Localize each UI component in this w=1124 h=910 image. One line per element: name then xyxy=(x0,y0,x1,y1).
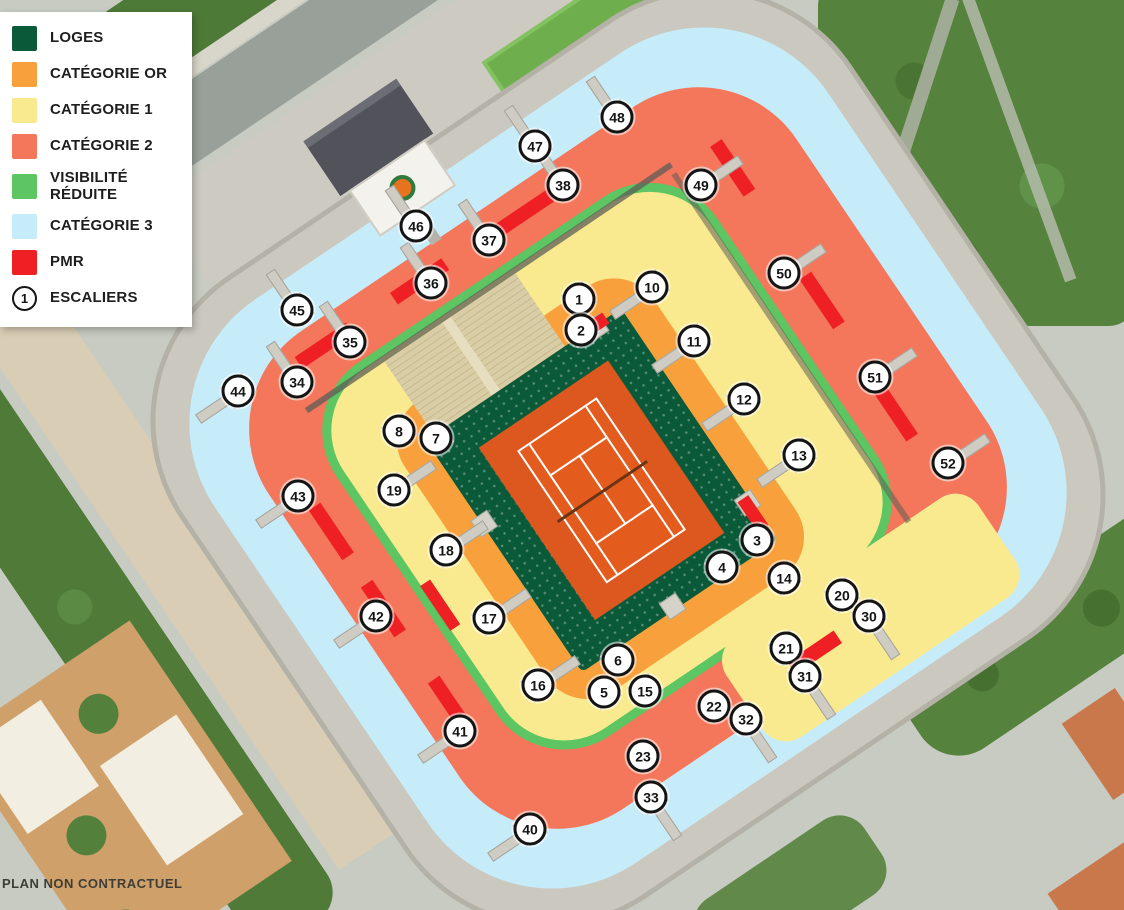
escalier-6[interactable]: 6 xyxy=(602,644,635,677)
escalier-45[interactable]: 45 xyxy=(281,294,314,327)
escalier-5[interactable]: 5 xyxy=(588,676,621,709)
escalier-17[interactable]: 17 xyxy=(473,602,506,635)
escalier-23[interactable]: 23 xyxy=(627,740,660,773)
escalier-1[interactable]: 1 xyxy=(563,283,596,316)
legend-label: CATÉGORIE 3 xyxy=(50,218,153,235)
escalier-41[interactable]: 41 xyxy=(444,715,477,748)
legend-item: PMR xyxy=(12,250,184,275)
legend-swatch-icon xyxy=(12,62,37,87)
seating-map-canvas: 1234567810111213141516171819202122233031… xyxy=(0,0,1124,910)
legend-item: CATÉGORIE 3 xyxy=(12,214,184,239)
escalier-50[interactable]: 50 xyxy=(768,257,801,290)
legend-item: CATÉGORIE OR xyxy=(12,62,184,87)
legend-label: ESCALIERS xyxy=(50,290,138,307)
escalier-20[interactable]: 20 xyxy=(826,579,859,612)
legend-swatch-icon xyxy=(12,98,37,123)
escalier-22[interactable]: 22 xyxy=(698,690,731,723)
legend-label: LOGES xyxy=(50,30,104,47)
escalier-42[interactable]: 42 xyxy=(360,600,393,633)
escalier-37[interactable]: 37 xyxy=(473,224,506,257)
escalier-18[interactable]: 18 xyxy=(430,534,463,567)
legend: LOGESCATÉGORIE ORCATÉGORIE 1CATÉGORIE 2V… xyxy=(0,12,192,327)
legend-item: CATÉGORIE 2 xyxy=(12,134,184,159)
escalier-8[interactable]: 8 xyxy=(383,415,416,448)
legend-swatch-icon xyxy=(12,174,37,199)
plan-note: PLAN NON CONTRACTUEL xyxy=(2,876,182,891)
escalier-43[interactable]: 43 xyxy=(282,480,315,513)
escalier-44[interactable]: 44 xyxy=(222,375,255,408)
escalier-12[interactable]: 12 xyxy=(728,383,761,416)
escalier-46[interactable]: 46 xyxy=(400,210,433,243)
legend-label: CATÉGORIE 2 xyxy=(50,138,153,155)
escalier-51[interactable]: 51 xyxy=(859,361,892,394)
legend-item: VISIBILITÉ RÉDUITE xyxy=(12,170,184,203)
escalier-3[interactable]: 3 xyxy=(741,524,774,557)
legend-items: LOGESCATÉGORIE ORCATÉGORIE 1CATÉGORIE 2V… xyxy=(12,26,184,311)
escalier-13[interactable]: 13 xyxy=(783,439,816,472)
escalier-14[interactable]: 14 xyxy=(768,562,801,595)
escalier-32[interactable]: 32 xyxy=(730,703,763,736)
escalier-31[interactable]: 31 xyxy=(789,660,822,693)
legend-item: 1ESCALIERS xyxy=(12,286,184,311)
escalier-40[interactable]: 40 xyxy=(514,813,547,846)
escalier-33[interactable]: 33 xyxy=(635,781,668,814)
legend-label: VISIBILITÉ RÉDUITE xyxy=(50,170,128,203)
escalier-10[interactable]: 10 xyxy=(636,271,669,304)
legend-item: LOGES xyxy=(12,26,184,51)
legend-label: CATÉGORIE OR xyxy=(50,66,167,83)
escalier-34[interactable]: 34 xyxy=(281,366,314,399)
escalier-21[interactable]: 21 xyxy=(770,632,803,665)
escalier-16[interactable]: 16 xyxy=(522,669,555,702)
legend-label: CATÉGORIE 1 xyxy=(50,102,153,119)
escaliers-symbol-icon: 1 xyxy=(12,286,37,311)
escalier-47[interactable]: 47 xyxy=(519,130,552,163)
escalier-30[interactable]: 30 xyxy=(853,600,886,633)
escalier-4[interactable]: 4 xyxy=(706,551,739,584)
legend-swatch-icon xyxy=(12,134,37,159)
legend-swatch-icon xyxy=(12,250,37,275)
legend-item: CATÉGORIE 1 xyxy=(12,98,184,123)
legend-swatch-icon xyxy=(12,26,37,51)
escalier-48[interactable]: 48 xyxy=(601,101,634,134)
escalier-2[interactable]: 2 xyxy=(565,314,598,347)
escalier-35[interactable]: 35 xyxy=(334,326,367,359)
escalier-7[interactable]: 7 xyxy=(420,422,453,455)
escalier-15[interactable]: 15 xyxy=(629,675,662,708)
escalier-38[interactable]: 38 xyxy=(547,169,580,202)
legend-swatch-icon xyxy=(12,214,37,239)
escalier-52[interactable]: 52 xyxy=(932,447,965,480)
escalier-49[interactable]: 49 xyxy=(685,169,718,202)
escalier-11[interactable]: 11 xyxy=(678,325,711,358)
escalier-19[interactable]: 19 xyxy=(378,474,411,507)
escalier-36[interactable]: 36 xyxy=(415,267,448,300)
legend-label: PMR xyxy=(50,254,84,271)
